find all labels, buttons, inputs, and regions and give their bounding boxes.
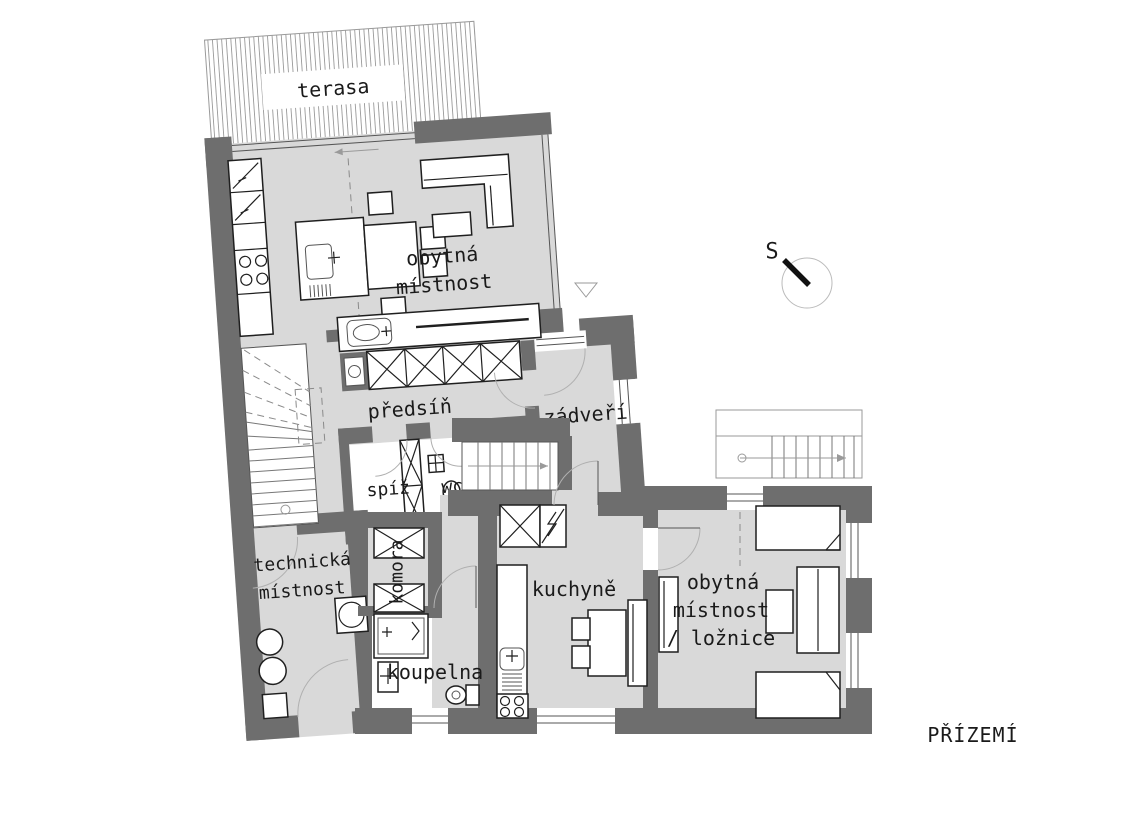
kitchen-wardrobe-fridge xyxy=(500,505,566,547)
staircase xyxy=(241,344,318,528)
bed-1 xyxy=(756,506,840,550)
chair xyxy=(572,646,590,668)
window-kitchen-south xyxy=(537,708,615,734)
label-koupelna: koupelna xyxy=(387,660,483,684)
window-bathroom-south xyxy=(412,708,448,734)
window-bedroom-east-1 xyxy=(846,523,872,578)
kitchen-table xyxy=(588,610,626,676)
kitchen-cabinet xyxy=(628,600,647,686)
drainage-triangle-marker xyxy=(575,283,597,297)
basement-stair xyxy=(462,442,558,490)
chair xyxy=(572,618,590,640)
wc-basin xyxy=(428,454,444,472)
north-indicator: S xyxy=(765,240,832,309)
bathtub xyxy=(374,614,428,658)
bedroom-wardrobe xyxy=(797,567,839,653)
label-living-room-1a: obytná xyxy=(405,242,479,271)
column xyxy=(326,330,339,343)
label-bedroom-1: obytná xyxy=(687,570,759,594)
window-bedroom-east-2 xyxy=(846,633,872,688)
chair xyxy=(368,191,393,215)
bed-2 xyxy=(756,672,840,718)
page-title: PŘÍZEMÍ xyxy=(927,723,1018,747)
label-komora: komora xyxy=(387,539,408,604)
stove xyxy=(497,694,528,718)
kitchen-counter xyxy=(497,565,528,718)
label-kuchyne: kuchyně xyxy=(532,577,616,601)
north-label: S xyxy=(765,240,778,265)
exterior-stair xyxy=(716,410,862,478)
floor-plan-svg: terasa xyxy=(0,0,1129,826)
coffee-table xyxy=(432,212,472,238)
boiler xyxy=(256,628,284,656)
bathroom-toilet xyxy=(446,685,479,705)
label-spiz: spíž xyxy=(366,477,411,501)
equipment-box xyxy=(262,693,288,719)
label-terasa: terasa xyxy=(296,74,370,103)
label-bedroom-3: / ložnice xyxy=(667,626,775,650)
washing-machine xyxy=(340,352,370,392)
label-bedroom-2: místnost xyxy=(673,598,769,622)
